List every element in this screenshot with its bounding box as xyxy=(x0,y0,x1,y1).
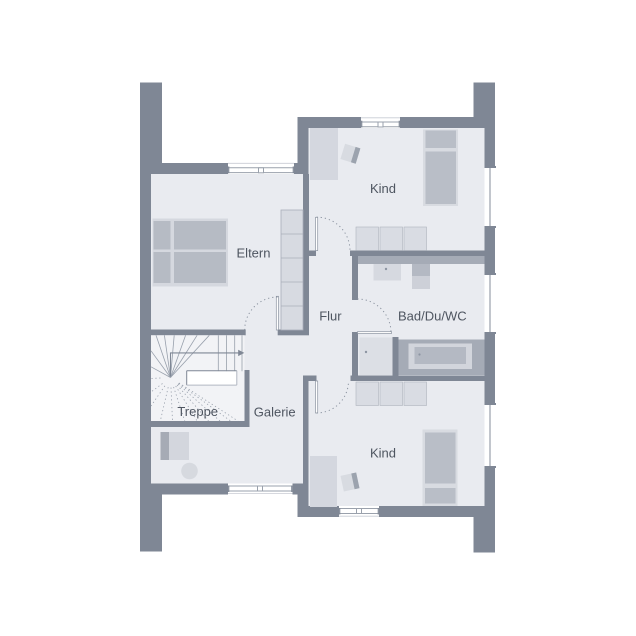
svg-text:Treppe: Treppe xyxy=(177,404,218,419)
svg-text:Bad/Du/WC: Bad/Du/WC xyxy=(398,309,467,324)
svg-text:Kind: Kind xyxy=(370,181,396,196)
svg-text:Eltern: Eltern xyxy=(237,246,271,261)
svg-text:Kind: Kind xyxy=(370,445,396,460)
svg-text:Galerie: Galerie xyxy=(254,405,296,420)
svg-text:Flur: Flur xyxy=(319,309,342,324)
